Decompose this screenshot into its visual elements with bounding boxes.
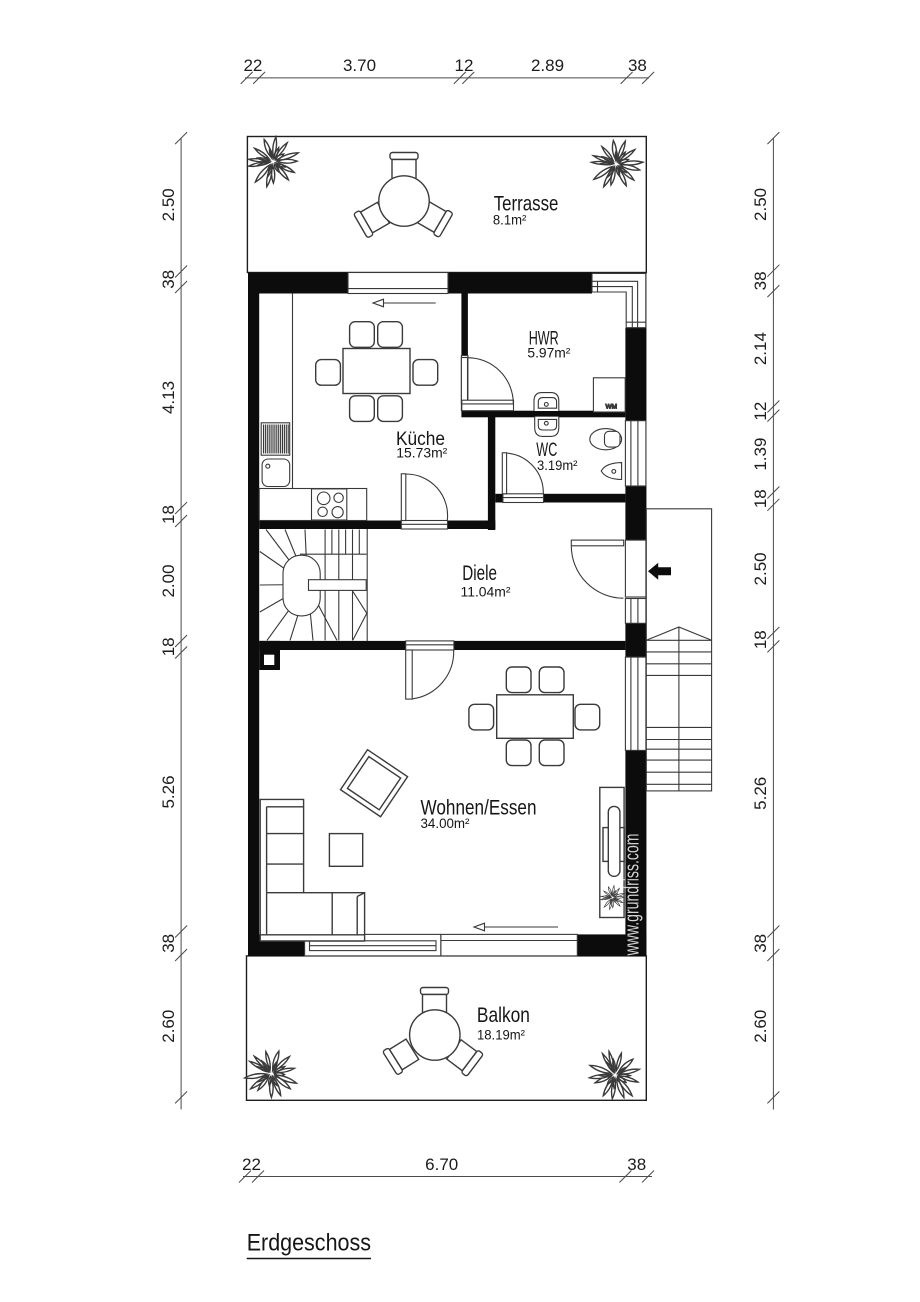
svg-text:2.50: 2.50 xyxy=(751,188,770,221)
svg-text:2.60: 2.60 xyxy=(751,1010,770,1043)
svg-text:2.00: 2.00 xyxy=(159,564,178,597)
svg-text:2.60: 2.60 xyxy=(159,1010,178,1043)
svg-text:18: 18 xyxy=(751,630,770,649)
svg-text:Balkon: Balkon xyxy=(477,1004,530,1027)
svg-text:38: 38 xyxy=(751,934,770,953)
svg-text:22: 22 xyxy=(242,1155,261,1174)
svg-text:2.50: 2.50 xyxy=(751,552,770,585)
svg-text:18: 18 xyxy=(159,505,178,524)
svg-text:18: 18 xyxy=(751,489,770,508)
svg-text:22: 22 xyxy=(243,56,262,75)
svg-text:2.50: 2.50 xyxy=(159,188,178,221)
svg-text:11.04m²: 11.04m² xyxy=(461,584,511,600)
svg-text:5.26: 5.26 xyxy=(159,775,178,808)
svg-text:38: 38 xyxy=(628,56,647,75)
svg-text:2.14: 2.14 xyxy=(751,332,770,365)
svg-text:4.13: 4.13 xyxy=(159,381,178,414)
svg-text:34.00m²: 34.00m² xyxy=(421,815,470,831)
svg-text:www.grundriss.com: www.grundriss.com xyxy=(622,834,644,957)
svg-text:18.19m²: 18.19m² xyxy=(477,1027,525,1043)
svg-text:3.19m²: 3.19m² xyxy=(537,457,578,473)
svg-text:1.39: 1.39 xyxy=(751,438,770,471)
svg-text:18: 18 xyxy=(159,637,178,656)
svg-text:WM: WM xyxy=(606,404,618,411)
svg-text:38: 38 xyxy=(627,1155,646,1174)
svg-text:8.1m²: 8.1m² xyxy=(493,211,527,227)
svg-text:2.89: 2.89 xyxy=(531,56,564,75)
svg-text:15.73m²: 15.73m² xyxy=(396,445,447,461)
svg-text:3.70: 3.70 xyxy=(343,56,376,75)
svg-text:Erdgeschoss: Erdgeschoss xyxy=(247,1230,371,1257)
svg-text:6.70: 6.70 xyxy=(425,1155,458,1174)
svg-text:38: 38 xyxy=(159,934,178,953)
svg-text:38: 38 xyxy=(159,270,178,289)
svg-text:5.26: 5.26 xyxy=(751,777,770,810)
svg-text:5.97m²: 5.97m² xyxy=(527,345,570,361)
svg-text:12: 12 xyxy=(455,56,474,75)
svg-text:12: 12 xyxy=(751,402,770,421)
svg-text:Diele: Diele xyxy=(462,562,497,585)
svg-text:38: 38 xyxy=(751,271,770,290)
